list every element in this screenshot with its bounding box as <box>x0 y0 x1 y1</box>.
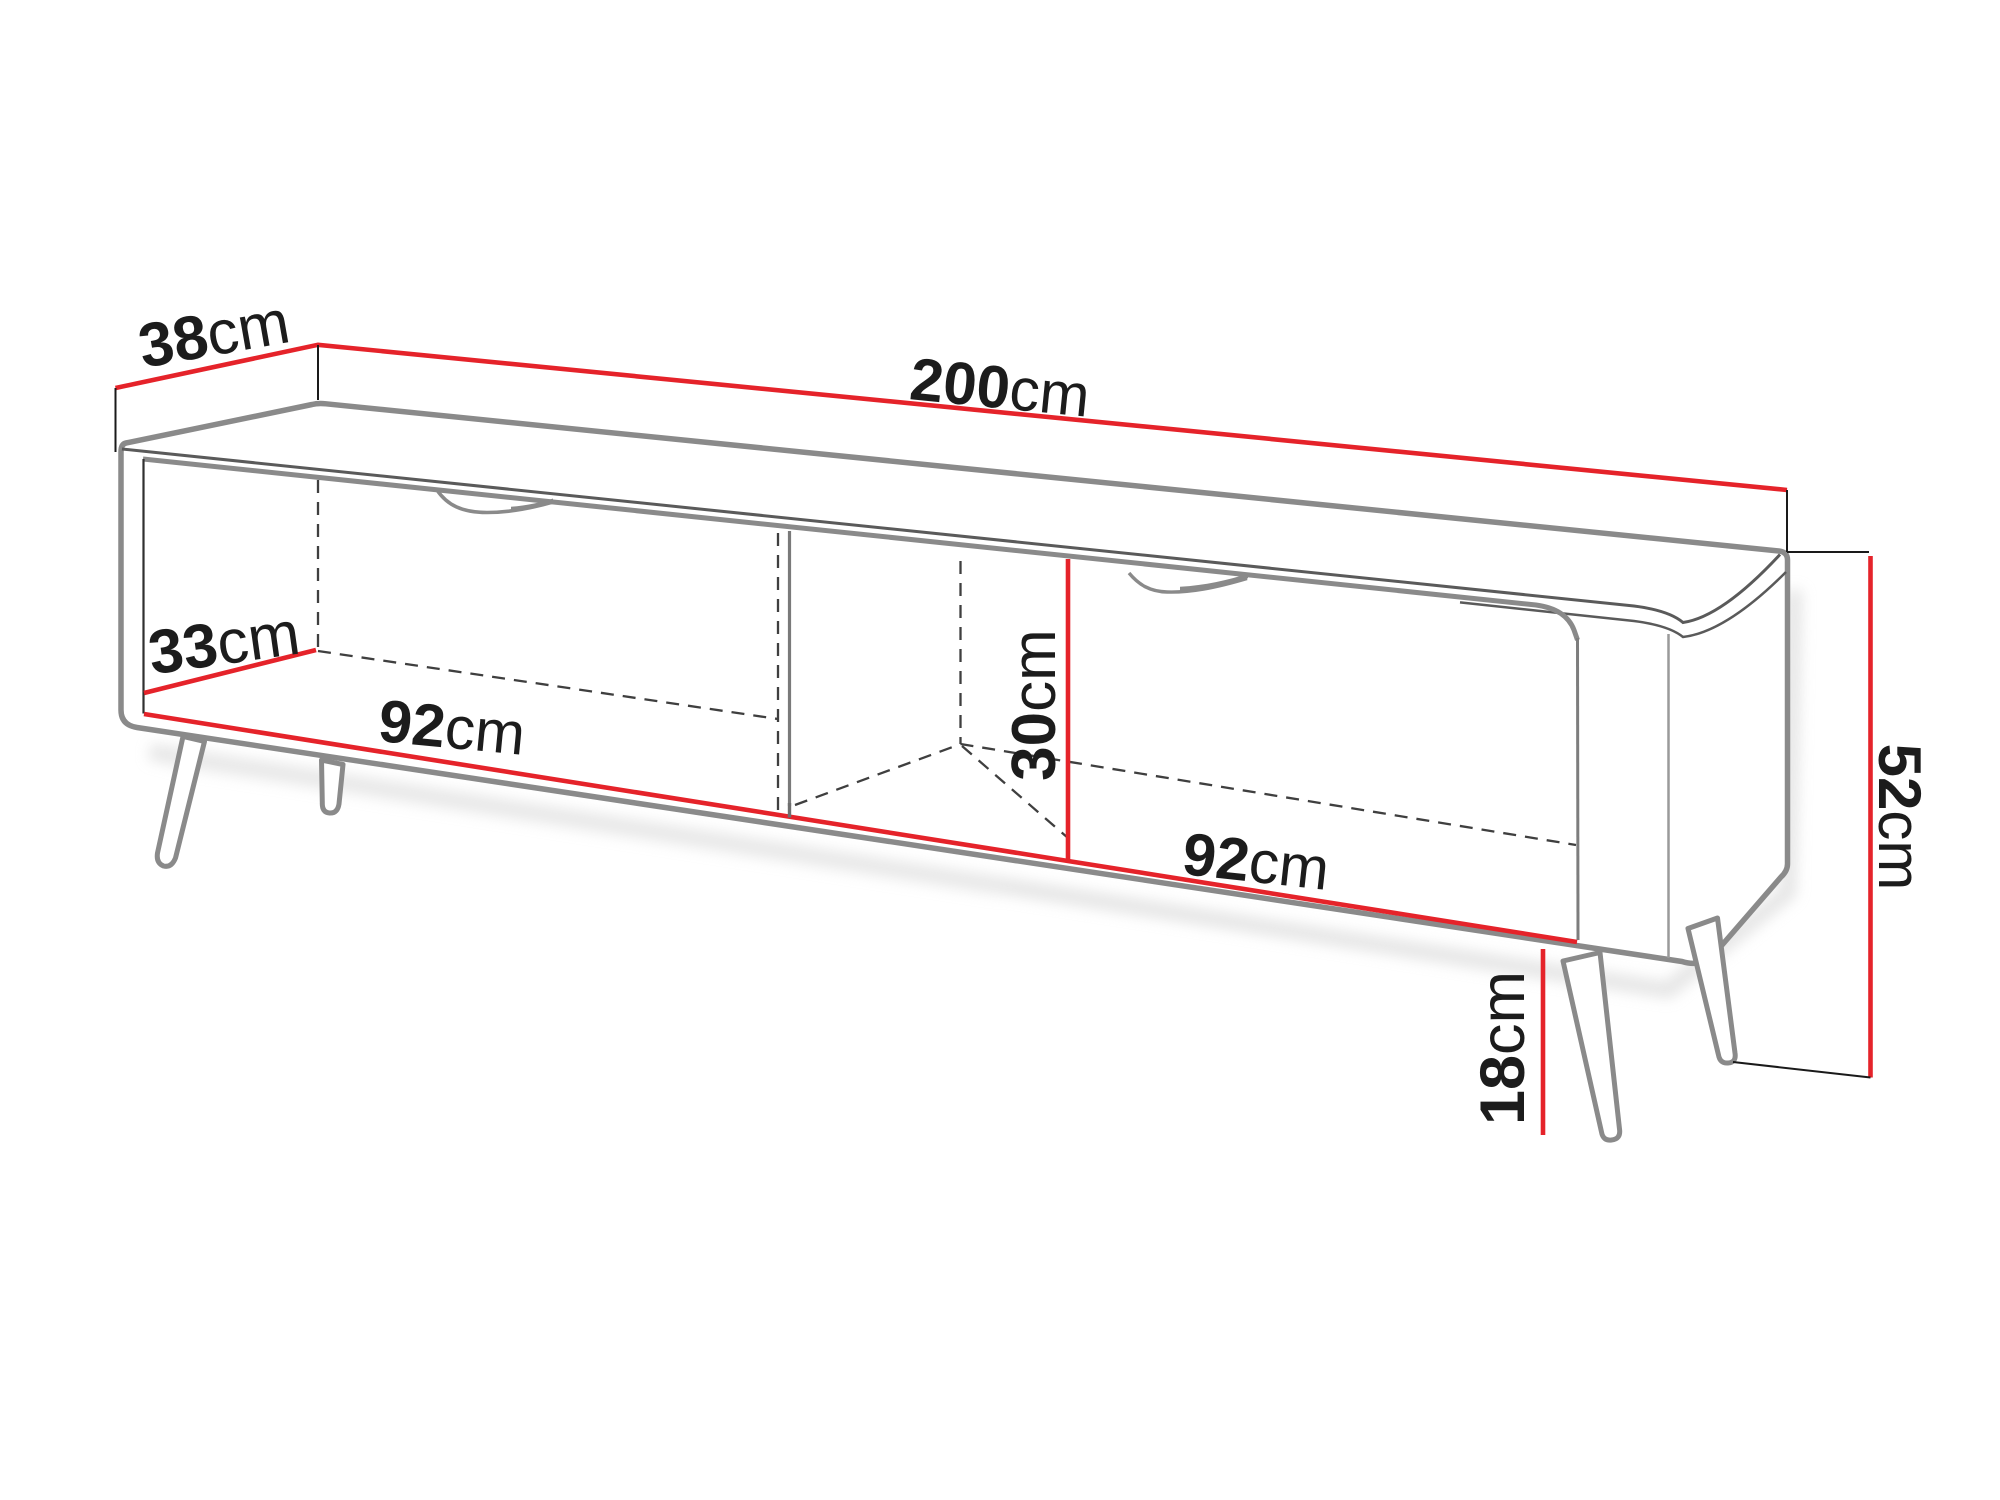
svg-text:52cm: 52cm <box>1867 744 1934 891</box>
svg-text:92cm: 92cm <box>376 687 528 768</box>
svg-text:30cm: 30cm <box>1000 629 1069 781</box>
svg-text:18cm: 18cm <box>1468 971 1538 1125</box>
